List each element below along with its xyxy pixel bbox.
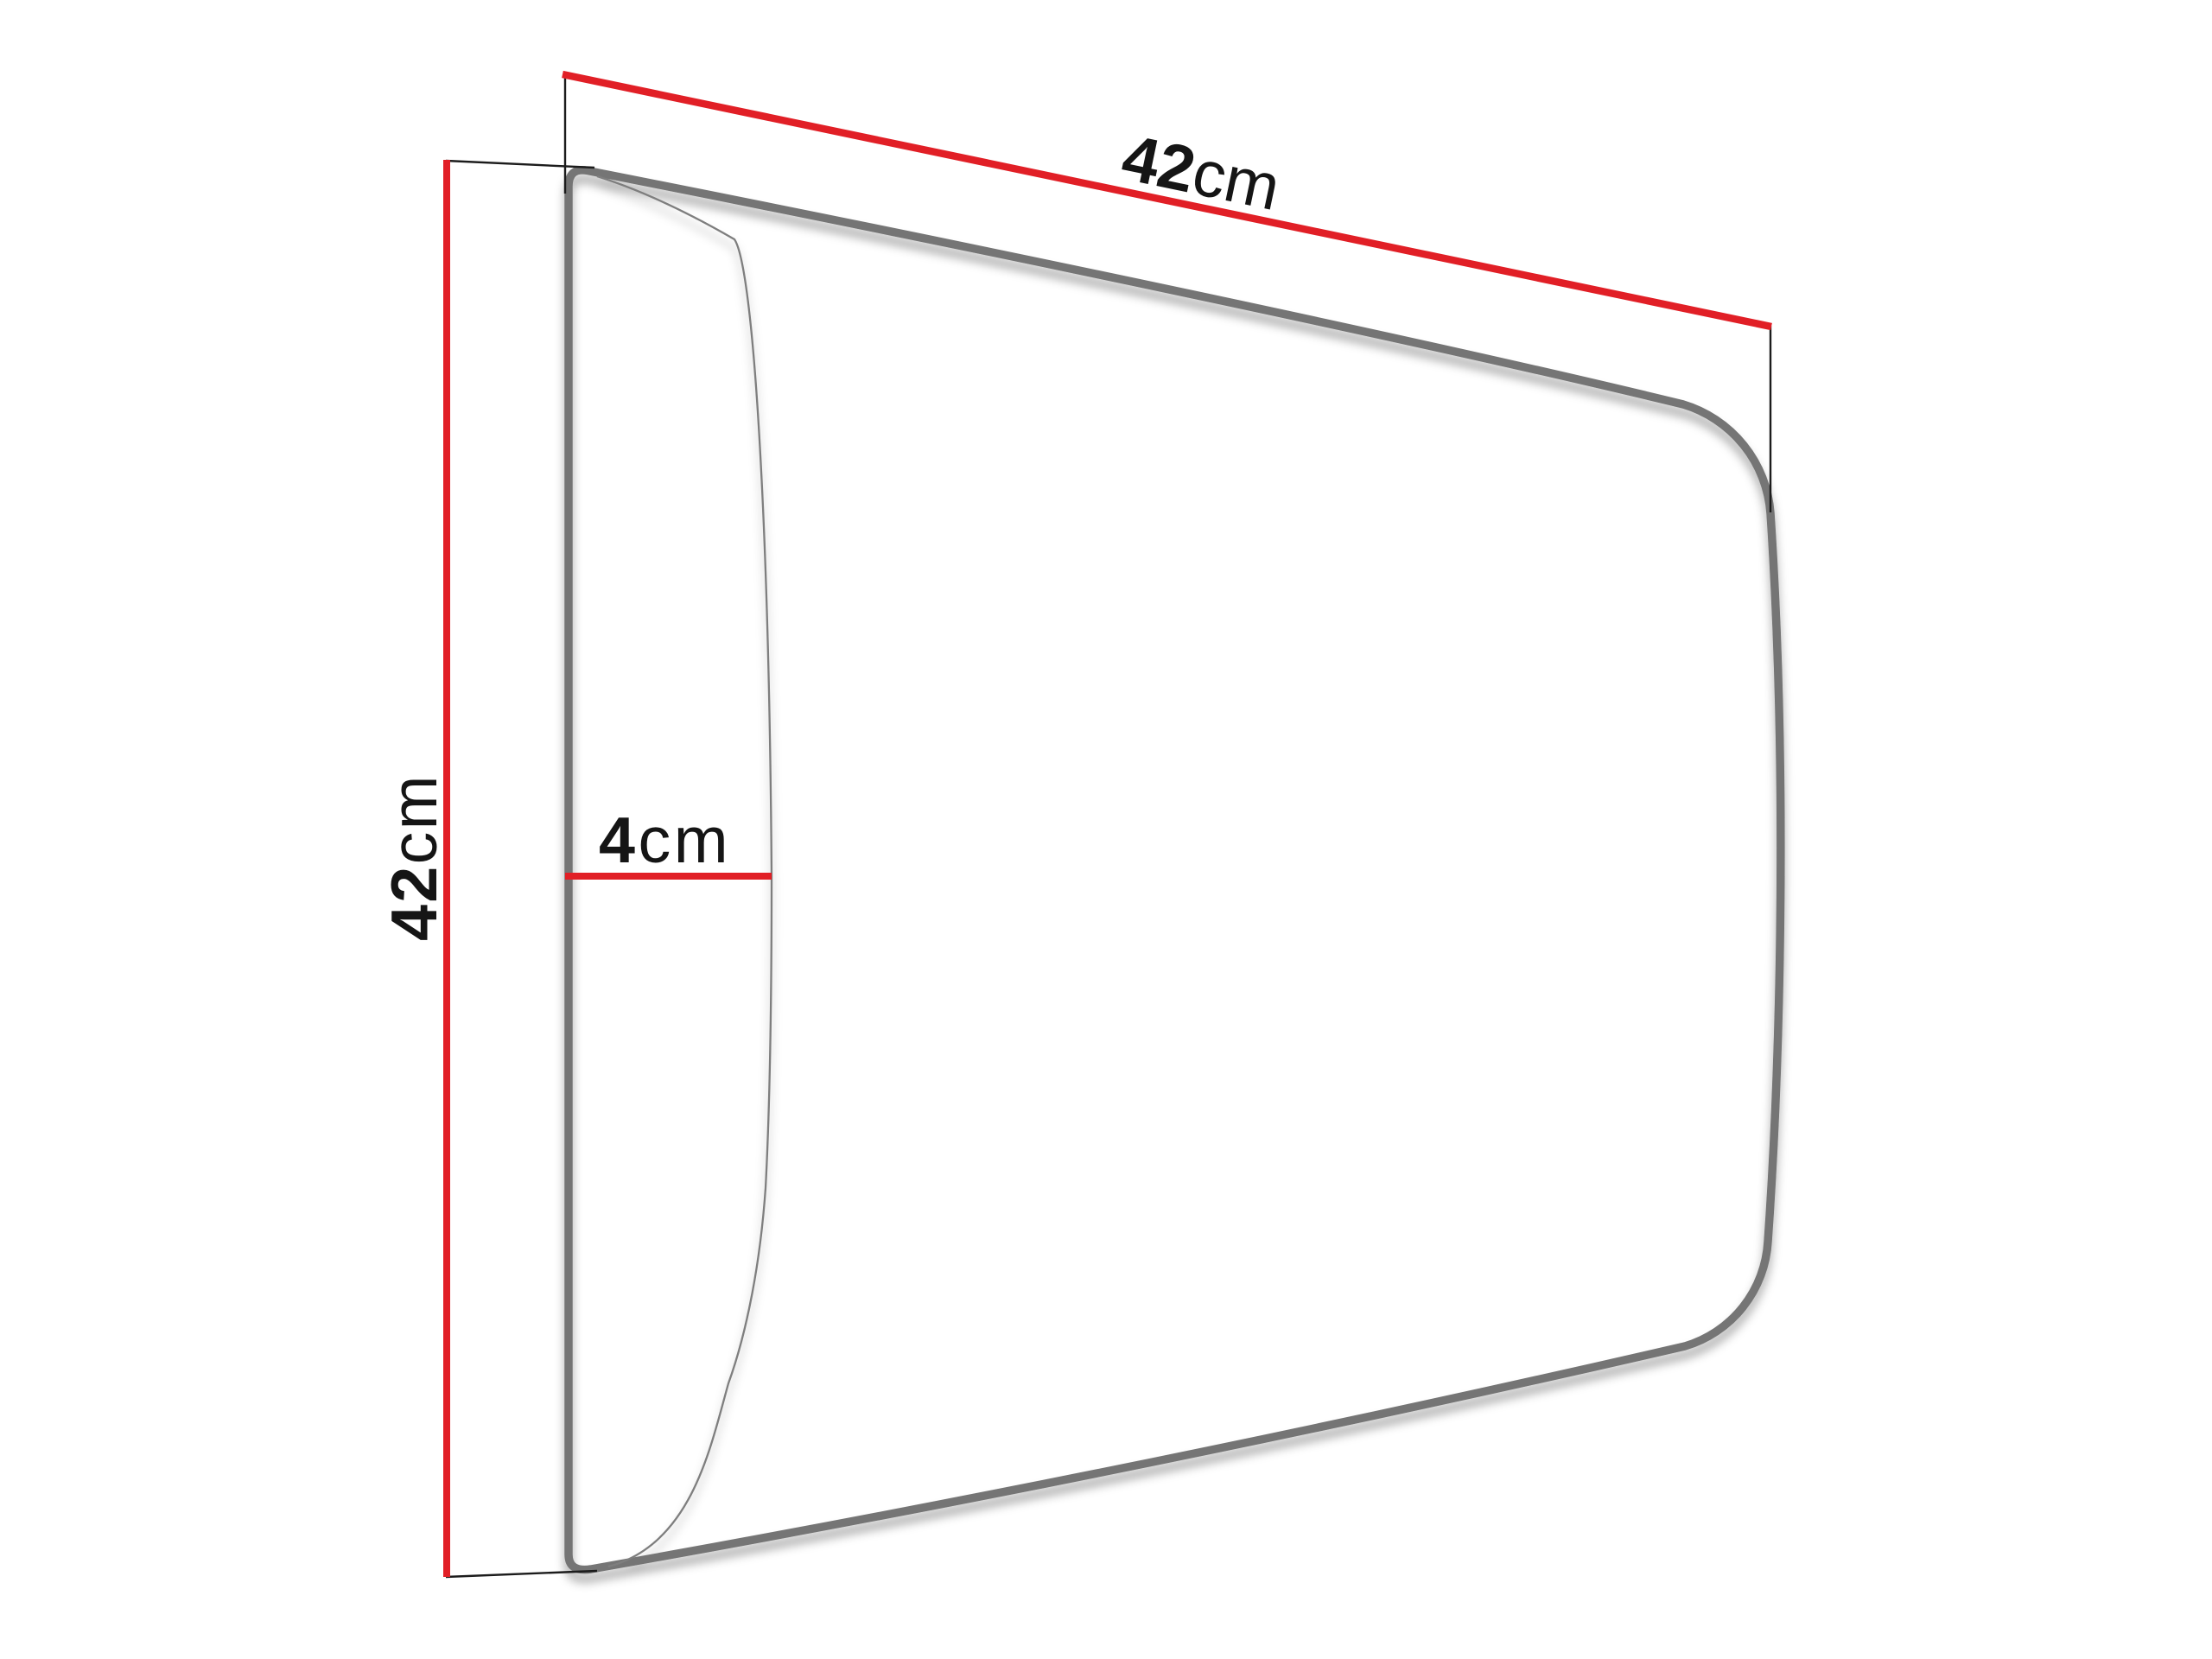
svg-text:42cm: 42cm	[378, 773, 450, 941]
svg-text:4cm: 4cm	[599, 804, 731, 876]
